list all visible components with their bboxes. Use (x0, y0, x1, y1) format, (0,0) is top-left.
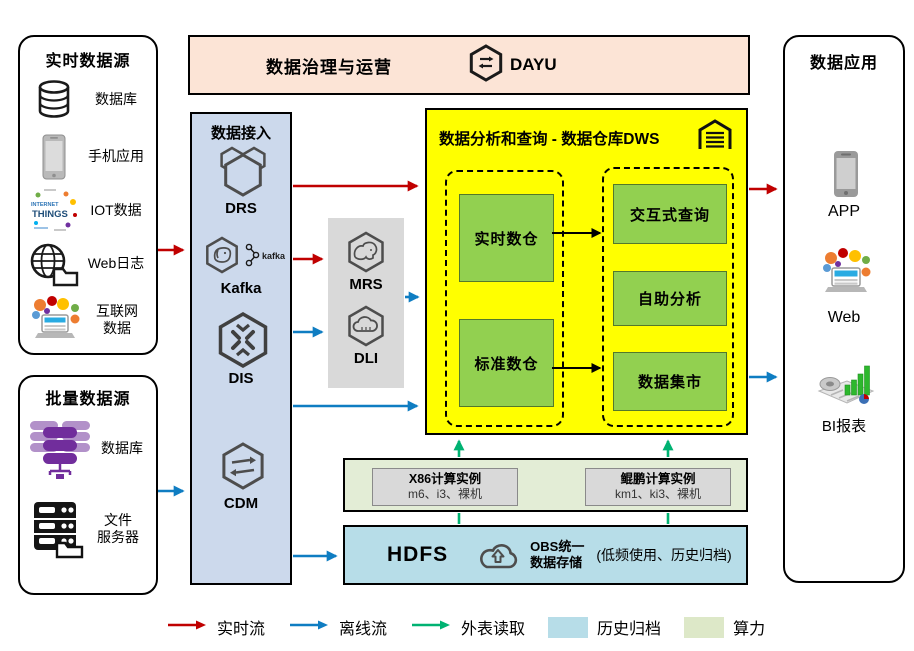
legend: 实时流 离线流 外表读取 历史归档 算力 (166, 610, 765, 644)
source-label: 数据库 (96, 440, 148, 458)
x86-specs: m6、i3、裸机 (373, 487, 517, 501)
list-item: 互联网 数据 (28, 295, 148, 345)
warehouse-standard: 标准数仓 (459, 319, 554, 407)
service-interactive-query: 交互式查询 (613, 184, 727, 244)
applications-title: 数据应用 (785, 49, 903, 73)
mrs-icon (344, 230, 388, 279)
list-item: 文件 服务器 (28, 499, 148, 559)
x86-instance-chip: X86计算实例 m6、i3、裸机 (372, 468, 518, 506)
bi-report-icon (817, 357, 875, 412)
source-label: 互联网 数据 (86, 303, 148, 338)
service-label-cdm: CDM (192, 495, 290, 512)
hdfs-label: HDFS (387, 543, 448, 567)
batch-sources-panel: 批量数据源 数据库 文件 服务器 (18, 375, 158, 595)
database-icon (28, 79, 80, 121)
compute-box: X86计算实例 m6、i3、裸机 鲲鹏计算实例 km1、ki3、裸机 (343, 458, 748, 512)
app-label: APP (785, 203, 903, 221)
dws-header: 数据分析和查询 - 数据仓库DWS (427, 110, 746, 157)
processing-box: MRS DLI (328, 218, 404, 388)
legend-label: 实时流 (217, 615, 265, 639)
smartphone-icon (28, 133, 80, 181)
legend-label: 外表读取 (461, 615, 525, 639)
governance-banner: 数据治理与运营 DAYU (188, 35, 750, 95)
dws-title: 数据分析和查询 - 数据仓库DWS (439, 127, 659, 149)
storage-box: HDFS OBS统一 数据存储 (低频使用、历史归档) (343, 525, 748, 585)
service-label-drs: DRS (192, 200, 290, 217)
legend-label: 历史归档 (597, 615, 661, 639)
batch-sources-title: 批量数据源 (20, 385, 156, 409)
source-label: 文件 服务器 (88, 512, 148, 547)
ingestion-title: 数据接入 (192, 122, 290, 143)
list-item: INTERNET THINGS IOT数据 (28, 187, 148, 235)
legend-external-read: 外表读取 (410, 615, 525, 639)
legend-realtime: 实时流 (166, 615, 265, 639)
applications-panel: 数据应用 APP Web BI报表 (783, 35, 905, 583)
obs-cloud-icon (476, 538, 522, 572)
kunpeng-instance-chip: 鲲鹏计算实例 km1、ki3、裸机 (585, 468, 731, 506)
legend-archive: 历史归档 (548, 615, 661, 639)
archive-swatch (548, 617, 588, 638)
internet-bubbles-icon (28, 295, 82, 345)
legend-offline: 离线流 (288, 615, 387, 639)
kafka-badge-text: kafka (262, 251, 286, 261)
legend-label: 算力 (733, 615, 765, 639)
web-montage-icon (819, 247, 873, 304)
warehouse-group: 实时数仓 标准数仓 (445, 170, 564, 427)
dli-icon (344, 304, 388, 353)
list-item: 数据库 (28, 417, 148, 481)
service-data-mart: 数据集市 (613, 352, 727, 411)
dayu-icon (466, 42, 506, 89)
list-item: 手机应用 (28, 133, 148, 181)
legend-compute: 算力 (684, 615, 765, 639)
globe-log-icon (28, 241, 80, 287)
iot-wordcloud-icon: INTERNET THINGS (28, 187, 80, 235)
ingestion-column: 数据接入 DRS kafka Kafka DIS (190, 112, 292, 585)
app-phone-icon (828, 149, 864, 204)
service-label-dli: DLI (328, 350, 404, 367)
iot-word-internet: INTERNET (31, 202, 59, 208)
dis-icon (215, 312, 271, 373)
external-read-arrow-icon (410, 618, 452, 637)
realtime-arrow-icon (166, 618, 208, 637)
legend-label: 离线流 (339, 615, 387, 639)
architecture-diagram: 实时数据源 数据库 手机应用 INTERNET THINGS IOT数据 (0, 0, 914, 651)
governance-title: 数据治理与运营 (266, 53, 392, 78)
realtime-sources-title: 实时数据源 (20, 47, 156, 71)
analysis-group: 交互式查询 自助分析 数据集市 (602, 167, 734, 427)
drs-icon (216, 144, 270, 203)
dws-warehouse-icon (696, 118, 734, 157)
source-label: 数据库 (84, 91, 148, 109)
list-item: 数据库 (28, 79, 148, 121)
kunpeng-specs: km1、ki3、裸机 (586, 487, 730, 501)
source-label: IOT数据 (84, 202, 148, 220)
web-label: Web (785, 309, 903, 327)
service-label-kafka: Kafka (192, 280, 290, 297)
storage-note: (低频使用、历史归档) (596, 545, 731, 565)
warehouse-realtime: 实时数仓 (459, 194, 554, 282)
kafka-icon: kafka (202, 234, 290, 283)
kunpeng-title: 鲲鹏计算实例 (586, 472, 730, 487)
file-server-icon (28, 499, 84, 559)
bi-label: BI报表 (785, 415, 903, 436)
realtime-sources-panel: 实时数据源 数据库 手机应用 INTERNET THINGS IOT数据 (18, 35, 158, 355)
source-label: 手机应用 (84, 148, 148, 166)
service-label-dis: DIS (192, 370, 290, 387)
dws-box: 数据分析和查询 - 数据仓库DWS 实时数仓 标准数仓 交互式查询 自助分析 数… (425, 108, 748, 435)
x86-title: X86计算实例 (373, 472, 517, 487)
cdm-icon (217, 439, 269, 498)
offline-arrow-icon (288, 618, 330, 637)
compute-swatch (684, 617, 724, 638)
iot-word-things: THINGS (32, 209, 68, 220)
service-label-mrs: MRS (328, 276, 404, 293)
dayu-badge: DAYU (466, 42, 557, 89)
source-label: Web日志 (84, 255, 148, 273)
service-self-analysis: 自助分析 (613, 271, 727, 326)
purple-database-icon (28, 417, 92, 481)
list-item: Web日志 (28, 241, 148, 287)
dayu-label: DAYU (510, 55, 557, 75)
obs-label: OBS统一 数据存储 (530, 539, 584, 572)
